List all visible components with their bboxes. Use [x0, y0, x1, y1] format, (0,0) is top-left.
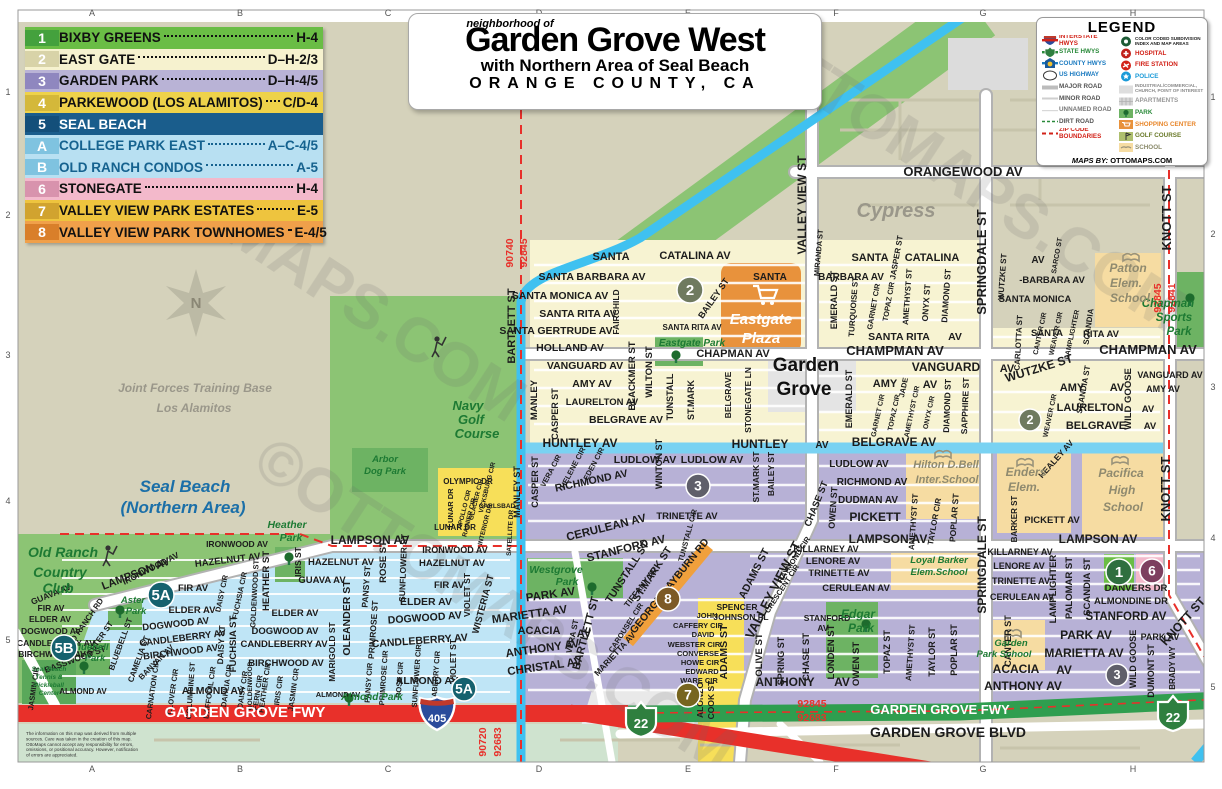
- grid-column-label: D: [536, 764, 543, 774]
- map-label: EDWARD: [685, 667, 719, 676]
- map-label: SAPPHIRE ST: [959, 377, 971, 435]
- legend-item-park: PARK: [1117, 107, 1205, 119]
- map-label: LAMPSON AV: [1059, 532, 1138, 546]
- grid-column-label: B: [237, 8, 243, 18]
- park-label: Edgar: [841, 607, 876, 621]
- index-row-4: 4PARKEWOOD (LOS ALAMITOS)C/D-4: [25, 92, 323, 114]
- map-label: OWEN ST: [851, 642, 862, 687]
- map-label: ADAMS ST: [718, 624, 730, 679]
- golf-icon: [1118, 131, 1134, 142]
- map-label: LUNAR DR: [446, 488, 455, 528]
- map-label: BRADY WY: [1168, 646, 1177, 690]
- map-label: LUNAR DR: [434, 523, 476, 532]
- legend-item-fire: FIRE STATION: [1117, 60, 1205, 72]
- map-label: ROSE ST: [378, 541, 389, 583]
- title-county: ORANGE COUNTY, CA: [409, 75, 821, 93]
- park-label: Dog Park: [364, 466, 406, 477]
- park-label: Park: [556, 576, 580, 588]
- map-label: AMY: [873, 378, 898, 390]
- park-label: Tennis &: [35, 674, 63, 681]
- city-label: Joint Forces Training Base: [118, 381, 272, 395]
- grid-row-label: 3: [1210, 382, 1215, 392]
- map-label: ELDER AV: [272, 608, 320, 619]
- park-icon: [1118, 108, 1134, 119]
- subdivision-badge: 8: [656, 587, 680, 611]
- rd-dirt-icon: [1042, 116, 1058, 127]
- grid-column-label: F: [833, 764, 839, 774]
- apts-icon: [1118, 96, 1134, 107]
- svg-text:8: 8: [664, 592, 672, 607]
- legend-item-label: PARK: [1135, 110, 1152, 117]
- index-label: GARDEN PARK: [59, 73, 159, 88]
- rd-minor-icon: [1042, 93, 1058, 104]
- map-label: SANTA: [851, 252, 888, 264]
- school-label: Elem.: [1110, 276, 1142, 290]
- map-label: AV: [1144, 421, 1157, 432]
- city-label: Los Alamitos: [157, 401, 232, 415]
- grid-row-label: 2: [1210, 229, 1215, 239]
- zip-icon: [1042, 128, 1058, 139]
- shop-icon: [1118, 119, 1134, 130]
- park-label: Loyal Barker: [910, 555, 969, 566]
- map-label: BAILEY ST: [766, 451, 776, 496]
- map-label: PICKETT: [849, 510, 901, 524]
- school-label: Hilton D.Bell: [913, 459, 979, 471]
- park-label: Westgrove: [529, 564, 583, 576]
- map-label: RICHMOND AV: [837, 477, 908, 488]
- map-label: AV: [834, 675, 850, 689]
- school-label: Pacifica: [1098, 466, 1144, 480]
- map-label: -BARBARA AV: [1019, 275, 1085, 286]
- map-label: AV: [815, 440, 828, 451]
- park-label: Golf: [458, 412, 486, 427]
- map-label: CHAPMAN AV: [696, 348, 770, 360]
- legend-item-rd-unnamed: UNNAMED ROAD: [1041, 105, 1115, 117]
- subdivision-badge: 5A: [148, 582, 174, 608]
- map-label: DUDMAN AV: [838, 495, 898, 506]
- index-label: VALLEY VIEW PARK ESTATES: [59, 203, 254, 218]
- subdivision-badge: 5B: [51, 635, 77, 661]
- map-label: ALMOND AV: [396, 675, 458, 687]
- legend-box: LEGEND INTERSTATE HWYSSTATE HWYSCOUNTY H…: [1036, 17, 1208, 166]
- police-icon: [1118, 71, 1134, 82]
- map-label: DOGWOOD AV: [251, 626, 319, 637]
- map-label: SPRINGDALE ST: [974, 209, 989, 315]
- legend-item-label: STATE HWYS: [1059, 49, 1099, 56]
- rd-major-icon: [1042, 82, 1058, 93]
- city-label: Cypress: [857, 200, 936, 222]
- map-label: CERULEAN AV: [822, 583, 890, 594]
- hw-i-icon: [1042, 35, 1058, 46]
- legend-item-hw-c: COUNTY HWYS: [1041, 58, 1115, 70]
- svg-text:7: 7: [684, 688, 692, 703]
- map-label: GARDEN GROVE FWY: [870, 702, 1010, 717]
- rd-unnamed-icon: [1042, 105, 1058, 116]
- map-label: Plaza: [742, 330, 780, 347]
- map-label: BARTLETT ST: [506, 288, 518, 363]
- park-label: Center: [39, 690, 60, 697]
- map-label: CATALINA AV: [659, 250, 731, 262]
- leader-dots: [208, 143, 265, 145]
- map-label: SANTA BARBARA AV: [539, 271, 646, 283]
- index-grid-ref: H-4: [296, 30, 323, 45]
- index-label: VALLEY VIEW PARK TOWNHOMES: [59, 225, 285, 240]
- map-label: EMERALD ST: [829, 270, 839, 329]
- map-label: SCANDIA ST: [1082, 558, 1093, 616]
- leader-dots: [138, 56, 264, 58]
- legend-item-label: POLICE: [1135, 74, 1158, 81]
- map-label: MARIGOLD ST: [327, 621, 337, 681]
- map-label: N: [191, 295, 202, 312]
- map-label: FAIRCHILD: [611, 289, 621, 334]
- legend-item-subdiv: COLOR CODED SUBDIVISION INDEX AND MAP AR…: [1117, 35, 1205, 48]
- index-number: 4: [25, 95, 59, 111]
- svg-text:3: 3: [1113, 668, 1120, 682]
- map-label: ST.MARK: [686, 380, 696, 420]
- park-label: Elem.School: [910, 567, 967, 578]
- map-label: PALOMAR ST: [1064, 557, 1075, 619]
- map-label: FIR AV: [178, 583, 209, 594]
- index-grid-ref: A-5: [296, 160, 323, 175]
- map-label: Eastgate: [730, 311, 793, 328]
- page-title: Garden Grove West: [409, 24, 821, 56]
- leader-dots: [164, 35, 293, 37]
- map-label: KILLARNEY AV: [987, 547, 1052, 557]
- index-number: A: [25, 138, 59, 154]
- fire-icon: [1118, 60, 1134, 71]
- map-label: HUNTLEY: [732, 437, 789, 451]
- zipcode-label: 92683: [492, 727, 504, 756]
- map-label: PARK AV: [1060, 628, 1112, 642]
- legend-item-label: DIRT ROAD: [1059, 119, 1094, 126]
- legend-item-label: APARTMENTS: [1135, 98, 1178, 105]
- index-label: STONEGATE: [59, 181, 142, 196]
- map-label: LENORE AV: [993, 561, 1045, 571]
- svg-text:5B: 5B: [54, 640, 73, 657]
- legend-item-hw-i: INTERSTATE HWYS: [1041, 35, 1115, 47]
- grid-row-label: 2: [5, 210, 10, 220]
- zipcode-label: 92845: [797, 698, 826, 710]
- map-label: CONVERSE: [677, 649, 719, 658]
- grid-row-label: 5: [5, 635, 10, 645]
- svg-text:22: 22: [634, 716, 648, 731]
- map-label: Garden: [773, 355, 840, 376]
- index-grid-ref: C/D-4: [283, 95, 323, 110]
- map-label: PICKETT AV: [1024, 515, 1080, 526]
- legend-item-label: SCHOOL: [1135, 145, 1162, 152]
- leader-dots: [266, 100, 280, 102]
- map-label: LUDLOW AV: [829, 459, 889, 470]
- map-label: IRONWOOD AV: [206, 539, 268, 549]
- index-number: 6: [25, 181, 59, 197]
- legend-item-golf: GOLF COURSE: [1117, 131, 1205, 143]
- grid-row-label: 4: [1210, 533, 1215, 543]
- legend-left-column: INTERSTATE HWYSSTATE HWYSCOUNTY HWYSUS H…: [1037, 35, 1115, 154]
- map-label: HAZELNUT AV: [308, 557, 375, 568]
- map-label: LUDLOW AV: [681, 454, 743, 466]
- map-label: BLACKMER ST: [627, 341, 638, 410]
- map-label: LENORE AV: [806, 556, 861, 567]
- map-label: IRONWOOD AV: [422, 545, 488, 555]
- subdivision-badge: 3: [1106, 664, 1128, 686]
- index-label: OLD RANCH CONDOS: [59, 160, 203, 175]
- index-grid-ref: A–C-4/5: [268, 138, 323, 153]
- park-label: Old Ranch: [28, 544, 98, 560]
- map-label: AV: [948, 331, 962, 343]
- legend-item-label: COLOR CODED SUBDIVISION INDEX AND MAP AR…: [1135, 37, 1205, 47]
- grid-column-label: G: [979, 8, 986, 18]
- index-number: 8: [25, 224, 59, 240]
- park-label: Garden: [994, 638, 1027, 649]
- legend-item-label: US HIGHWAY: [1059, 72, 1099, 79]
- map-label: SANTA: [592, 251, 629, 263]
- legend-item-label: HOSPITAL: [1135, 51, 1166, 58]
- map-label: FIR AV: [434, 580, 465, 591]
- index-label: SEAL BEACH: [59, 117, 147, 132]
- subdivision-badge: 3: [686, 474, 710, 498]
- map-label: KILLARNEY AV: [793, 544, 858, 554]
- school-label: Elem.: [1008, 480, 1040, 494]
- subdiv-icon: [1118, 36, 1134, 47]
- map-label: CASPER ST: [550, 388, 560, 440]
- index-row-6: 6STONEGATEH-4: [25, 178, 323, 200]
- legend-item-zip: ZIP CODE BOUNDARIES: [1041, 128, 1115, 140]
- index-label: COLLEGE PARK EAST: [59, 138, 205, 153]
- school-label: School: [1110, 291, 1151, 305]
- legend-item-label: UNNAMED ROAD: [1059, 107, 1111, 114]
- map-label: OLIVE ST: [754, 633, 765, 676]
- map-label: CERULEAN AV: [990, 592, 1054, 602]
- zipcode-label: 90720: [477, 727, 489, 756]
- legend-item-label: SHOPPING CENTER: [1135, 122, 1196, 129]
- legend-item-school: SCHOOL: [1117, 142, 1205, 154]
- map-label: TUNSTALL: [665, 373, 675, 420]
- map-label: TRINETTE AV: [992, 576, 1050, 586]
- legend-item-rd-minor: MINOR ROAD: [1041, 93, 1115, 105]
- map-label: SPRINGDALE ST: [975, 516, 989, 614]
- map-label: KNOTT ST: [1158, 456, 1173, 521]
- map-label: CHAMPMAN AV: [1099, 342, 1197, 357]
- map-label: TOPAZ ST: [882, 630, 892, 674]
- map-label: SANTA MONICA AV: [512, 290, 608, 302]
- map-label: Grove: [777, 379, 832, 400]
- school-label: Inter.School: [916, 474, 980, 486]
- map-label: STONEGATE LN: [743, 367, 753, 433]
- svg-text:5A: 5A: [455, 682, 473, 697]
- park-label: Navy: [452, 398, 484, 413]
- map-label: HOLLAND AV: [536, 342, 604, 354]
- grid-row-label: 1: [5, 87, 10, 97]
- park-label: Pickleball: [34, 682, 64, 689]
- index-row-2: 2EAST GATED–H-2/3: [25, 49, 323, 71]
- grid-row-label: 4: [5, 496, 10, 506]
- legend-item-label: MINOR ROAD: [1059, 96, 1100, 103]
- grid-column-label: G: [979, 764, 986, 774]
- school-label: Patton: [1109, 261, 1146, 275]
- map-label: CHAMPMAN AV: [846, 343, 944, 358]
- map-label: CASPER ST: [530, 456, 540, 508]
- index-label: EAST GATE: [59, 52, 135, 67]
- map-label: KNOTT ST: [1159, 185, 1174, 250]
- legend-item-label: INDUSTRIAL/COMMERCIAL, CHURCH, POINT OF …: [1135, 84, 1205, 94]
- park-label: Park: [848, 621, 875, 635]
- state-route-shield: 22: [1158, 696, 1188, 731]
- grid-row-label: 3: [5, 350, 10, 360]
- park-label: Country: [33, 564, 88, 580]
- map-label: CAFFERY CIR: [673, 621, 724, 630]
- index-number: 2: [25, 51, 59, 67]
- park-label: Park: [85, 653, 106, 664]
- svg-text:405: 405: [428, 713, 446, 725]
- index-number: 5: [25, 116, 59, 132]
- map-label: SANTA RITA AV: [539, 308, 617, 320]
- map-label: ELDER AV: [400, 596, 452, 608]
- index-row-3: 3GARDEN PARKD–H-4/5: [25, 70, 323, 92]
- legend-title: LEGEND: [1037, 20, 1207, 35]
- map-label: BIRCHWOOD AV: [248, 658, 324, 669]
- map-label: VANGUARD: [912, 360, 981, 374]
- map-label: AV: [577, 628, 592, 640]
- map-label: SANTA: [753, 272, 787, 283]
- map-label: DIAMOND ST: [941, 378, 953, 433]
- hw-s-icon: [1042, 47, 1058, 58]
- index-row-a: ACOLLEGE PARK EASTA–C-4/5: [25, 135, 323, 157]
- legend-item-label: COUNTY HWYS: [1059, 61, 1106, 68]
- grid-column-label: B: [237, 764, 243, 774]
- map-label: BELGRAVE AV: [852, 435, 936, 449]
- map-label: TRINETTE AV: [808, 568, 870, 579]
- map-label: CHASE ST: [801, 633, 812, 681]
- map-label: SANTA RITA: [868, 331, 930, 343]
- svg-text:3: 3: [694, 479, 702, 494]
- park-label: Heather: [267, 519, 307, 531]
- state-route-shield: 22: [626, 702, 656, 737]
- legend-right-column: COLOR CODED SUBDIVISION INDEX AND MAP AR…: [1115, 35, 1205, 154]
- index-row-b: BOLD RANCH CONDOSA-5: [25, 157, 323, 179]
- map-label: DAISY ST: [215, 624, 227, 664]
- map-label: ANTHONY AV: [984, 679, 1062, 693]
- map-label: ST.MARK ST: [751, 451, 761, 503]
- map-label: OLEANDER ST: [341, 580, 353, 656]
- legend-item-rd-major: MAJOR ROAD: [1041, 81, 1115, 93]
- index-grid-ref: E-5: [297, 203, 323, 218]
- school-icon: [1118, 142, 1134, 153]
- leader-dots: [206, 164, 293, 166]
- map-label: Seal Beach: [140, 477, 231, 496]
- map-label: AMY AV: [1146, 384, 1180, 394]
- svg-text:2: 2: [686, 282, 694, 299]
- legend-item-police: POLICE: [1117, 71, 1205, 83]
- legend-item-hw-s: STATE HWYS: [1041, 47, 1115, 59]
- map-label: AV: [1056, 663, 1072, 677]
- map-label: BELGRAVE: [1066, 420, 1126, 432]
- school-label: High: [1109, 483, 1136, 497]
- map-label: ALMONDINE DR: [1094, 596, 1168, 607]
- legend-credit: MAPS BY: OTTOMAPS.COM: [1037, 156, 1207, 165]
- map-label: SANTA MONICA: [999, 294, 1072, 305]
- legend-item-label: MAJOR ROAD: [1059, 84, 1102, 91]
- map-label: AMY: [1060, 382, 1085, 394]
- grid-column-label: A: [89, 764, 95, 774]
- park-label: Arbor: [371, 454, 399, 465]
- index-label: PARKEWOOD (LOS ALAMITOS): [59, 95, 263, 110]
- map-label: (Northern Area): [121, 498, 246, 517]
- park-label: Park: [280, 532, 304, 544]
- map-label: BELGRAVE: [723, 371, 733, 418]
- map-label: WILTON ST: [644, 346, 655, 398]
- map-label: VANGUARD AV: [1137, 370, 1202, 380]
- map-label: LAURELTON: [1057, 402, 1124, 414]
- index-row-5: 5SEAL BEACH: [25, 113, 323, 135]
- map-label: AV: [1031, 255, 1044, 266]
- legend-item-label: ZIP CODE BOUNDARIES: [1059, 128, 1115, 140]
- legend-item-label: FIRE STATION: [1135, 62, 1178, 69]
- map-label: HOWE CIR: [681, 658, 720, 667]
- legend-item-label: INTERSTATE HWYS: [1059, 35, 1115, 47]
- disclaimer: The information on this map was derived …: [22, 728, 154, 758]
- map-label: MANLEY: [529, 379, 540, 420]
- map-label: GARDEN GROVE FWY: [165, 704, 326, 721]
- map-label: GARDEN GROVE BLVD: [870, 724, 1026, 740]
- map-label: AMY AV: [572, 378, 611, 390]
- map-label: GUAVA AV: [298, 575, 346, 586]
- subdivision-index: 1BIXBY GREENSH-42EAST GATED–H-2/33GARDEN…: [25, 27, 323, 243]
- leader-dots: [162, 78, 265, 80]
- legend-item-shop: SHOPPING CENTER: [1117, 119, 1205, 131]
- index-row-8: 8VALLEY VIEW PARK TOWNHOMESE-4/5: [25, 221, 323, 243]
- map-label: AV: [923, 379, 938, 391]
- hosp-icon: [1118, 48, 1134, 59]
- legend-item-hw-us: US HIGHWAY: [1041, 70, 1115, 82]
- legend-item-rd-dirt: DIRT ROAD: [1041, 116, 1115, 128]
- grid-column-label: H: [1130, 764, 1137, 774]
- svg-text:1: 1: [1115, 564, 1123, 581]
- map-label: WILD GOOSE: [1123, 368, 1134, 430]
- legend-item-label: GOLF COURSE: [1135, 133, 1181, 140]
- index-number: B: [25, 159, 59, 175]
- subdivision-badge: 6: [1140, 559, 1164, 583]
- map-label: CATALINA: [905, 252, 960, 264]
- park-label: Club: [42, 580, 74, 596]
- grid-row-label: 1: [1210, 92, 1215, 102]
- map-label: DAVID: [692, 630, 715, 639]
- index-grid-ref: D–H-4/5: [268, 73, 323, 88]
- map-label: BARKER ST: [1010, 496, 1019, 543]
- hw-us-icon: [1042, 70, 1058, 81]
- map-label: AV: [817, 623, 829, 633]
- park-label: Almond Park: [340, 692, 403, 703]
- index-row-1: 1BIXBY GREENSH-4: [25, 27, 323, 49]
- map-label: IRIS ST: [293, 546, 303, 577]
- subdivision-badge: 1: [1106, 559, 1132, 585]
- map-label: EMERALD ST: [844, 369, 854, 428]
- map-label: AV: [1142, 404, 1155, 415]
- index-row-7: 7VALLEY VIEW PARK ESTATESE-5: [25, 200, 323, 222]
- index-number: 3: [25, 73, 59, 89]
- index-label: BIXBY GREENS: [59, 30, 161, 45]
- map-label: VALLEY VIEW ST: [795, 155, 809, 255]
- subdivision-badge: 7: [676, 683, 700, 707]
- map-label: DUMONT ST: [1146, 644, 1156, 698]
- park-label: Park: [126, 606, 147, 617]
- grid-row-label: 5: [1210, 682, 1215, 692]
- grid-column-label: F: [833, 8, 839, 18]
- subdivision-badge: 2: [677, 277, 703, 303]
- zipcode-label: 90740: [504, 238, 516, 267]
- svg-text:6: 6: [1148, 564, 1156, 579]
- map-label: LUDLOW AV: [614, 454, 676, 466]
- map-label: ORANGEWOOD AV: [903, 164, 1022, 179]
